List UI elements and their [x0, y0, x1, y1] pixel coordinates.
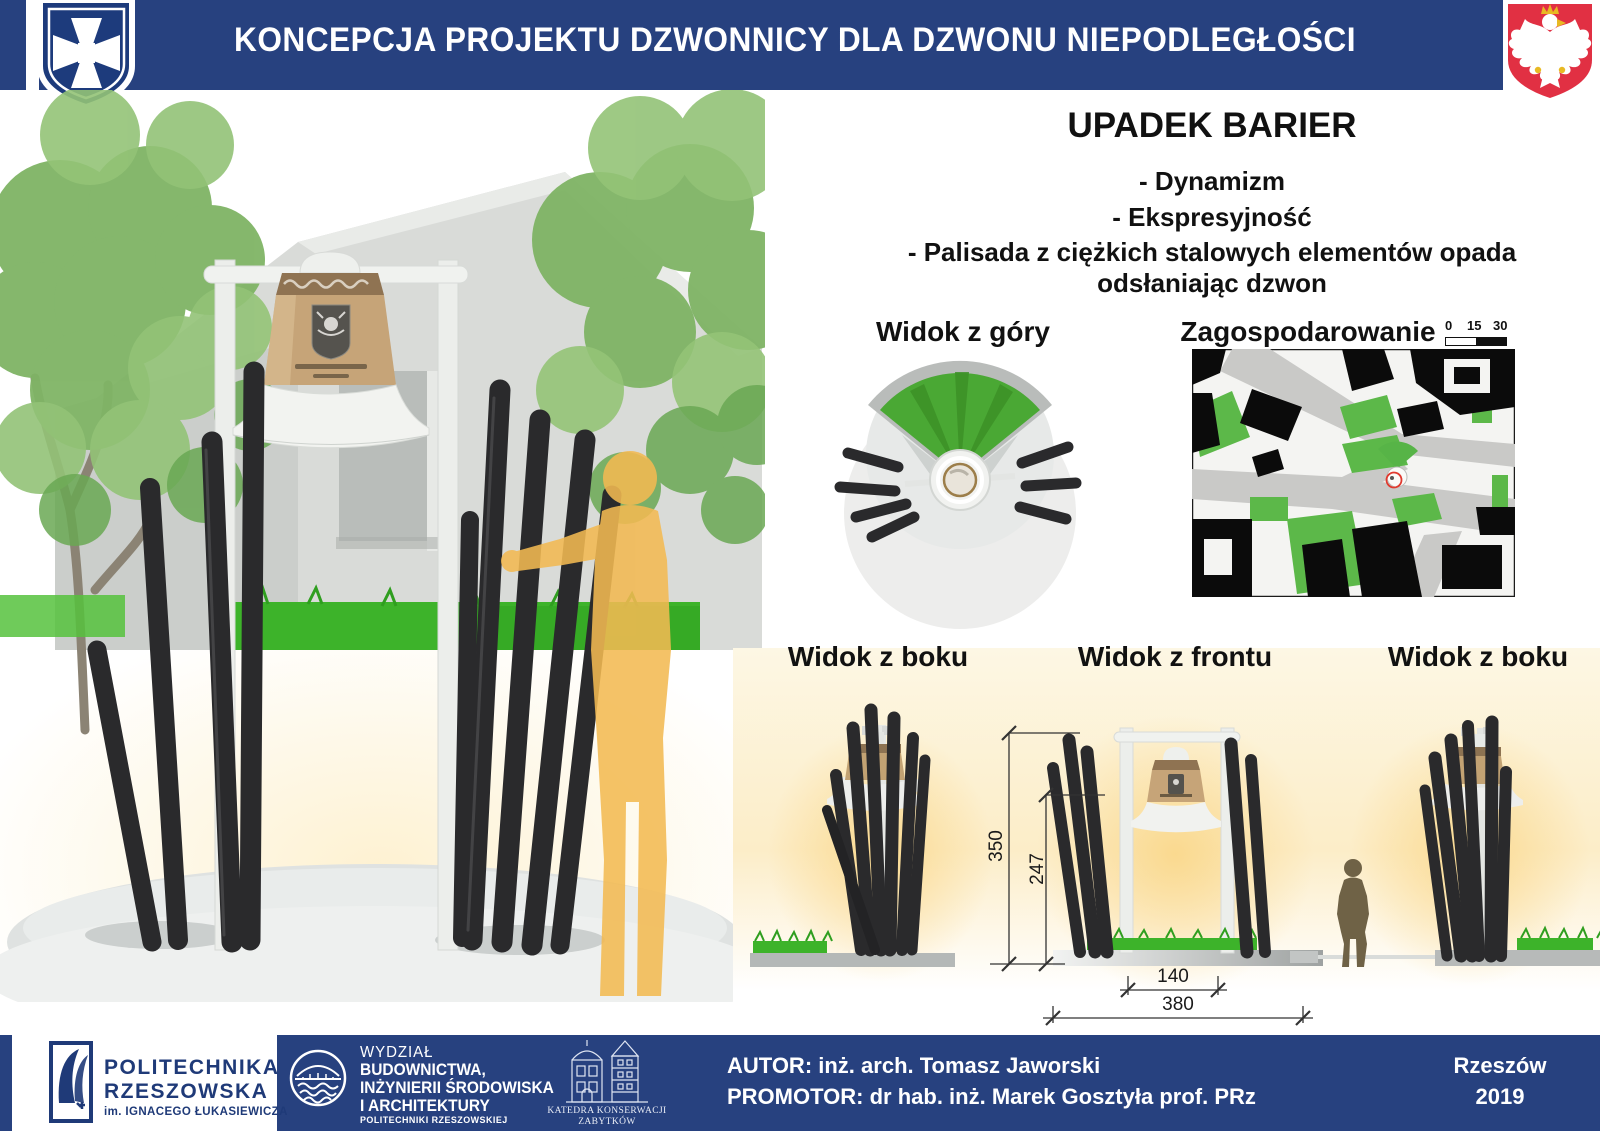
top-view-heading: Widok z góry: [833, 316, 1093, 348]
top-view-render: [810, 355, 1110, 635]
city-label: Rzeszów: [1430, 1053, 1570, 1079]
site-plan-map: [1192, 349, 1515, 597]
faculty-line2: BUDOWNICTWA,: [360, 1061, 486, 1080]
dim-total-height: 350: [986, 824, 1008, 868]
scale-tick-15: 15: [1467, 318, 1481, 333]
faculty-line4: I ARCHITEKTURY: [360, 1097, 490, 1116]
politechnika-rzeszowska-logo: [49, 1041, 93, 1123]
front-view-heading: Widok z frontu: [1045, 641, 1305, 673]
poland-eagle-crest-icon: [1500, 2, 1600, 102]
monument-conservation-dept-logo: [562, 1038, 652, 1106]
scale-tick-30: 30: [1493, 318, 1507, 333]
author-line: AUTOR: inż. arch. Tomasz Jaworski: [727, 1053, 1100, 1079]
promoter-line: PROMOTOR: dr hab. inż. Marek Gosztyła pr…: [727, 1084, 1256, 1110]
scale-tick-0: 0: [1445, 318, 1452, 333]
dim-total-width: 380: [1148, 994, 1208, 1016]
department-name-line2: ZABYTKÓW: [537, 1117, 677, 1127]
bullet-palisada: - Palisada z ciężkich stalowych elementó…: [842, 237, 1582, 298]
university-name-line2: RZESZOWSKA: [104, 1080, 268, 1104]
concept-heading: UPADEK BARIER: [1012, 106, 1412, 146]
side-view-right-heading: Widok z boku: [1348, 641, 1600, 673]
faculty-line5: POLITECHNIKI RZESZOWSKIEJ: [360, 1115, 508, 1126]
university-name-line1: POLITECHNIKA: [104, 1056, 280, 1080]
map-scale-bar: 0 15 30: [1443, 318, 1515, 348]
elevation-side-left: [750, 710, 955, 967]
scale-figure-silhouette: [1337, 859, 1369, 967]
presentation-board: KONCEPCJA PROJEKTU DZWONNICY DLA DZWONU …: [0, 0, 1600, 1131]
year-label: 2019: [1430, 1084, 1570, 1110]
university-name-line3: im. IGNACEGO ŁUKASIEWICZA: [104, 1106, 288, 1118]
dim-inner-height: 247: [1027, 847, 1049, 891]
page-title: KONCEPCJA PROJEKTU DZWONNICY DLA DZWONU …: [195, 21, 1395, 60]
faculty-line1: WYDZIAŁ: [360, 1044, 433, 1062]
faculty-line3: INŻYNIERII ŚRODOWISKA: [360, 1079, 554, 1098]
site-plan-heading: Zagospodarowanie: [1168, 316, 1448, 348]
bullet-dynamizm: - Dynamizm: [842, 166, 1582, 197]
bullet-ekspresyjnosc: - Ekspresyjność: [842, 202, 1582, 233]
side-view-left-heading: Widok z boku: [748, 641, 1008, 673]
dim-inner-width: 140: [1143, 966, 1203, 988]
faculty-logo: [288, 1048, 348, 1108]
concept-bullet-list: - Dynamizm - Ekspresyjność - Palisada z …: [842, 166, 1582, 304]
elevation-side-right: [1290, 722, 1600, 967]
department-name-line1: KATEDRA KONSERWACJI: [537, 1106, 677, 1116]
main-render-visualization: [0, 90, 765, 1020]
elevation-front: [1053, 728, 1323, 966]
